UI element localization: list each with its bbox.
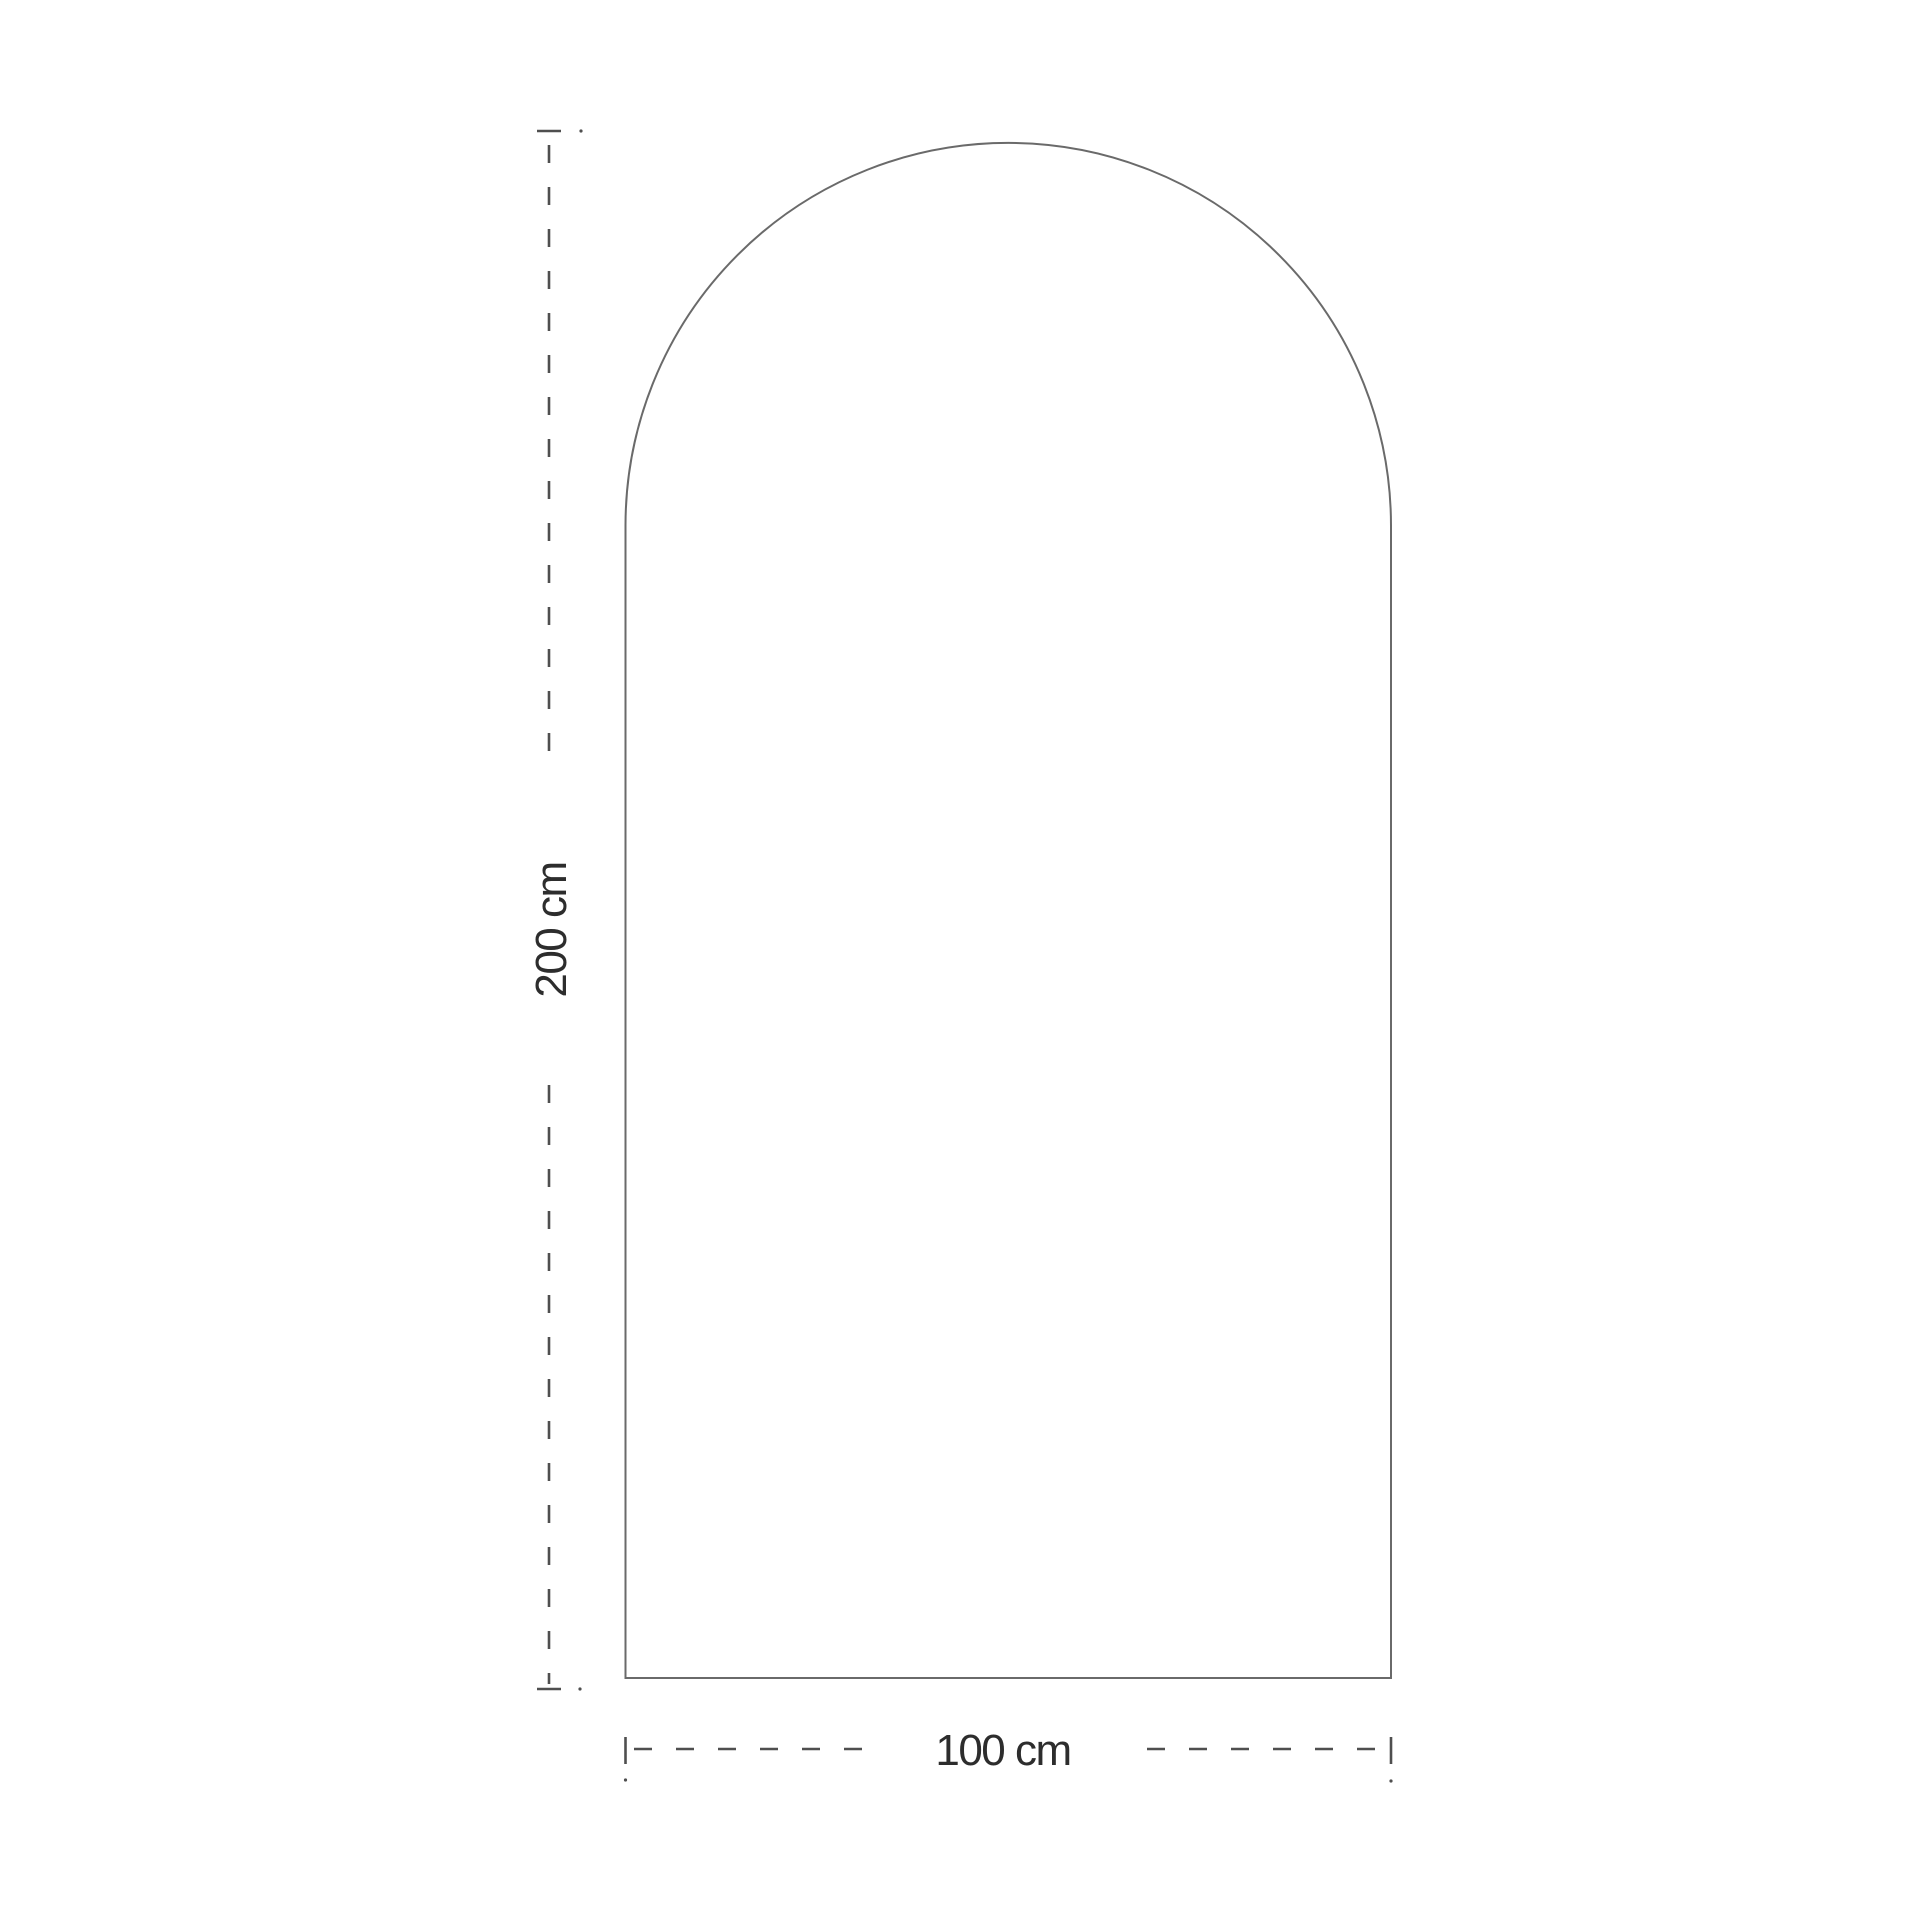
width-dimension-right-tick-dot (1389, 1779, 1392, 1782)
height-dimension-label: 200 cm (527, 862, 576, 997)
arched-panel-outline (626, 143, 1392, 1678)
width-dimension-label: 100 cm (935, 1726, 1070, 1775)
arched-panel-diagram: 200 cm 100 cm (0, 0, 1920, 1920)
height-dimension-top-tick-dot (579, 129, 582, 132)
width-dimension-left-tick-dot (624, 1778, 627, 1781)
dimension-drawing-canvas: 200 cm 100 cm (0, 0, 1920, 1920)
height-dimension-bottom-tick-dot (578, 1687, 581, 1690)
